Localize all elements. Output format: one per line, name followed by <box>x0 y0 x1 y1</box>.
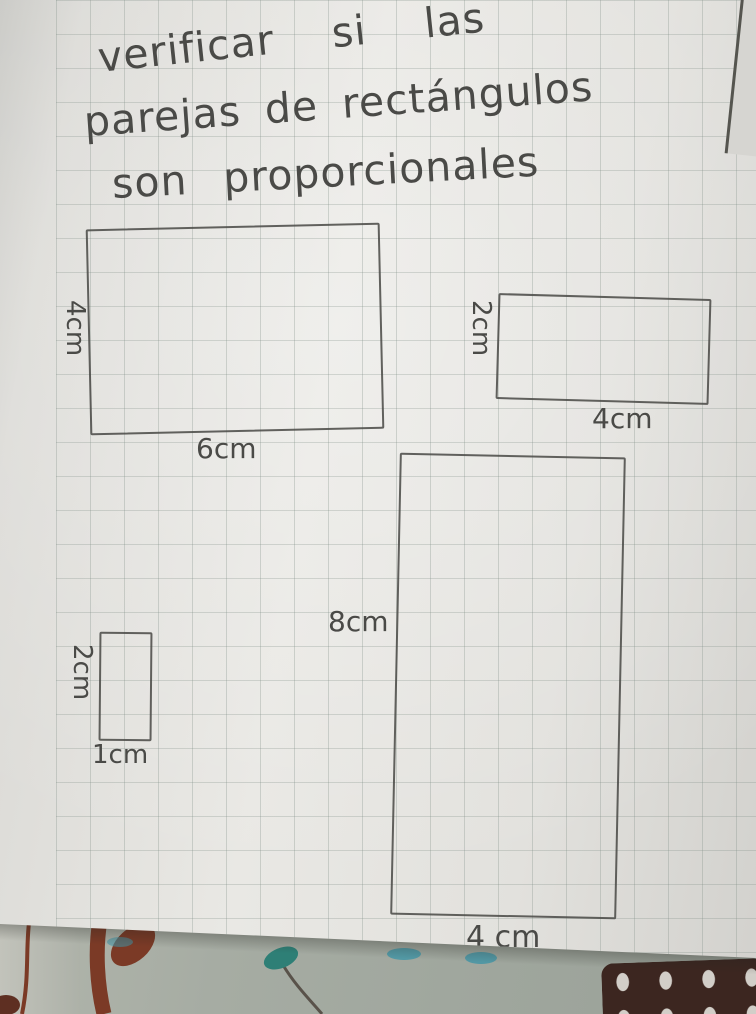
floral-corner-shape <box>0 995 20 1014</box>
rectangle-4x8 <box>390 453 626 920</box>
rectangle-4x8-height-label: 8cm <box>328 605 388 638</box>
bud-stem-shape <box>283 965 322 1014</box>
rectangle-4x2-height-label: 2cm <box>466 300 496 356</box>
rectangle-1x2-width-label: 1cm <box>92 740 148 770</box>
rectangle-6x4-height-label: 4cm <box>60 300 90 356</box>
rectangle-1x2-height-label: 2cm <box>67 644 97 700</box>
rectangle-1x2 <box>99 632 153 741</box>
notebook-page: verificar si las parejas de rectángulos … <box>0 0 756 1014</box>
rectangle-4x2-width-label: 4cm <box>592 402 652 435</box>
photo-notebook-worksheet: verificar si las parejas de rectángulos … <box>0 0 756 1014</box>
rectangle-6x4 <box>86 223 385 436</box>
rectangle-6x4-width-label: 6cm <box>196 432 256 465</box>
rectangle-4x2 <box>496 293 712 405</box>
